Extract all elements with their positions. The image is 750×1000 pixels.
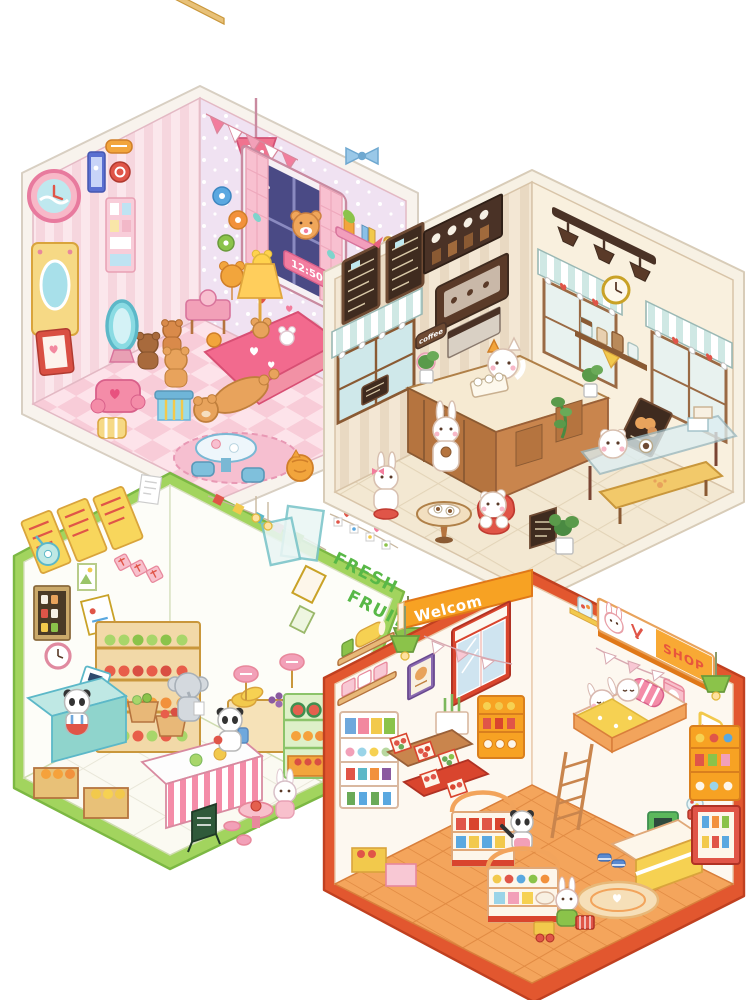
fruit-veg-wall-shelf <box>176 0 224 24</box>
fruit-wall-clock <box>46 644 70 668</box>
bedroom-wall-clock <box>29 171 79 221</box>
conv-toy-cart <box>534 922 554 942</box>
bedroom-picture-blue <box>88 152 105 192</box>
fruit-jar-cabinet <box>34 586 70 640</box>
diorama-illustration: 12:50 <box>0 0 750 1000</box>
conv-rug <box>578 882 658 918</box>
bedroom-bow-blue <box>346 148 378 164</box>
conv-drink-fridge <box>692 806 740 864</box>
bedroom-loveseat <box>91 380 145 413</box>
fruit-wall-paper <box>138 475 162 505</box>
bedroom-wall-cabinet-pink <box>106 198 135 272</box>
coffee-aframe-menu <box>530 508 556 548</box>
conv-tall-shelf <box>340 712 398 808</box>
conv-center-shelf-orange <box>478 696 524 758</box>
fruit-picture-green <box>78 564 96 590</box>
bedroom-badge-red <box>110 162 130 182</box>
bedroom-ottoman-striped <box>98 418 126 438</box>
bedroom-picture-red-frame <box>36 328 74 375</box>
bedroom-plaque-orange <box>106 140 132 153</box>
bedroom-bear-sticker <box>291 211 321 239</box>
conv-right-shelf <box>690 726 740 800</box>
bedroom-gift-box <box>155 391 193 420</box>
coffee-bear-at-table <box>599 429 627 458</box>
fruit-glass-display <box>262 506 324 565</box>
coffee-wall-clock <box>603 277 629 303</box>
diorama-collage: 12:50 <box>0 0 750 1000</box>
bedroom-wardrobe-mirror <box>32 243 78 335</box>
